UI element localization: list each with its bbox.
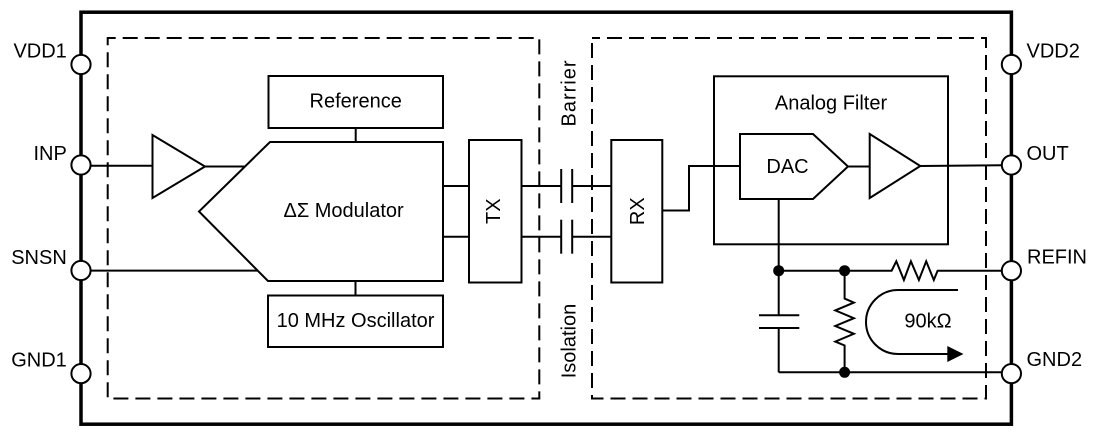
svg-text:VDD2: VDD2 [1027, 40, 1080, 62]
svg-text:90kΩ: 90kΩ [904, 311, 951, 333]
svg-text:OUT: OUT [1027, 143, 1069, 165]
svg-text:DAC: DAC [766, 156, 808, 178]
svg-text:GND1: GND1 [11, 350, 67, 372]
svg-text:10 MHz Oscillator: 10 MHz Oscillator [277, 310, 435, 332]
svg-text:ΔΣ Modulator: ΔΣ Modulator [283, 200, 404, 222]
svg-text:Barrier: Barrier [559, 59, 581, 126]
svg-text:TX: TX [483, 198, 505, 224]
svg-text:Analog Filter: Analog Filter [775, 93, 888, 115]
svg-text:Reference: Reference [310, 91, 402, 113]
svg-text:SNSN: SNSN [11, 247, 67, 269]
svg-text:RX: RX [627, 197, 649, 225]
svg-text:VDD1: VDD1 [13, 40, 66, 62]
svg-text:REFIN: REFIN [1027, 247, 1087, 269]
svg-text:INP: INP [33, 143, 66, 165]
svg-text:Isolation: Isolation [559, 304, 581, 379]
svg-text:GND2: GND2 [1027, 349, 1083, 371]
